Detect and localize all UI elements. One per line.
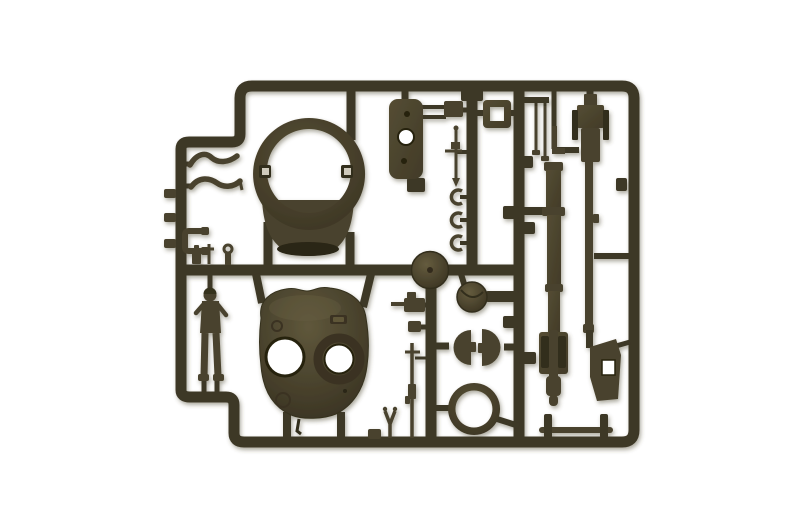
angular-plate-hole [602,360,615,375]
crew-figure-part [196,288,226,382]
photo-stage [0,0,800,530]
angular-plate-part [586,330,621,401]
tow-bar-part [539,414,613,438]
commander-hatch-part [457,282,487,312]
periscope-parts [192,244,232,265]
square-hatch-frame-part [483,100,511,128]
plate-small-hole-bottom [401,158,407,164]
machine-gun-barrel [585,160,593,330]
sprue-tree [164,86,634,442]
figure-helmet [204,288,217,295]
thin-rod-parts [532,106,565,161]
runner-knobs [164,189,176,248]
gun-breech [539,330,568,378]
hatch-half-parts [454,329,501,366]
idler-wheel-part [412,252,449,289]
sprue-photo [0,0,800,530]
wrench-part [383,407,397,438]
ring-collar-shadow [277,242,339,256]
mounting-ring-part [448,383,500,435]
small-block-part [368,429,381,439]
plate-small-hole-top [404,111,410,117]
lever-parts [182,154,242,191]
main-gun-barrel-part [539,162,568,406]
hull-side-plate-part [389,99,423,179]
turret-shell-part [260,288,369,434]
machine-gun-part [572,94,609,333]
antenna-part [445,126,462,188]
plate-large-hole [398,129,414,145]
clip-part [408,321,421,332]
turret-hatch-opening-right [325,345,354,374]
turret-hatch-opening-left [266,338,304,376]
bow-gun-part [391,292,425,312]
detail-box-part [444,101,463,117]
ring-tab-left-face [262,168,269,175]
frame-knob [616,178,627,191]
ring-tab-right-face [344,168,351,175]
